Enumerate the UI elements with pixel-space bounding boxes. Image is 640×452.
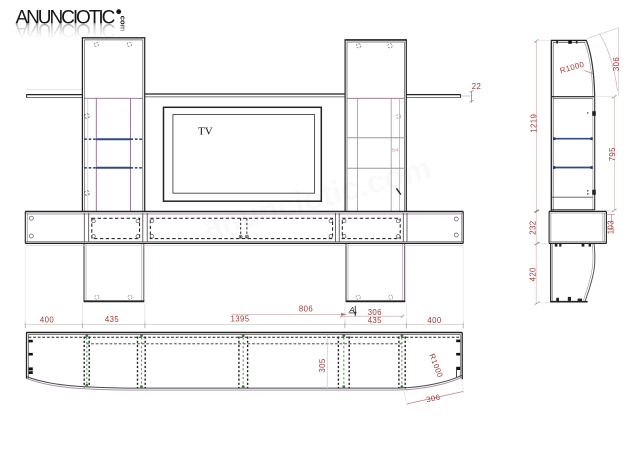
svg-text:1395: 1395 — [231, 315, 250, 324]
svg-text:232: 232 — [528, 220, 537, 234]
svg-text:306: 306 — [425, 393, 441, 405]
svg-text:400: 400 — [427, 316, 441, 325]
svg-text:R1000: R1000 — [559, 60, 586, 76]
svg-text:795: 795 — [608, 147, 617, 161]
svg-text:103: 103 — [607, 220, 616, 234]
svg-text:64: 64 — [392, 148, 399, 154]
svg-text:400: 400 — [40, 316, 54, 325]
svg-text:1219: 1219 — [529, 114, 538, 133]
svg-text:TV: TV — [198, 126, 213, 138]
svg-text:435: 435 — [105, 315, 119, 324]
svg-text:806: 806 — [299, 305, 313, 314]
svg-text:435: 435 — [368, 316, 382, 325]
svg-text:305: 305 — [318, 358, 327, 372]
svg-text:306: 306 — [612, 57, 621, 71]
svg-text:R1000: R1000 — [427, 352, 444, 379]
svg-text:22: 22 — [472, 82, 481, 91]
svg-text:420: 420 — [528, 267, 537, 281]
